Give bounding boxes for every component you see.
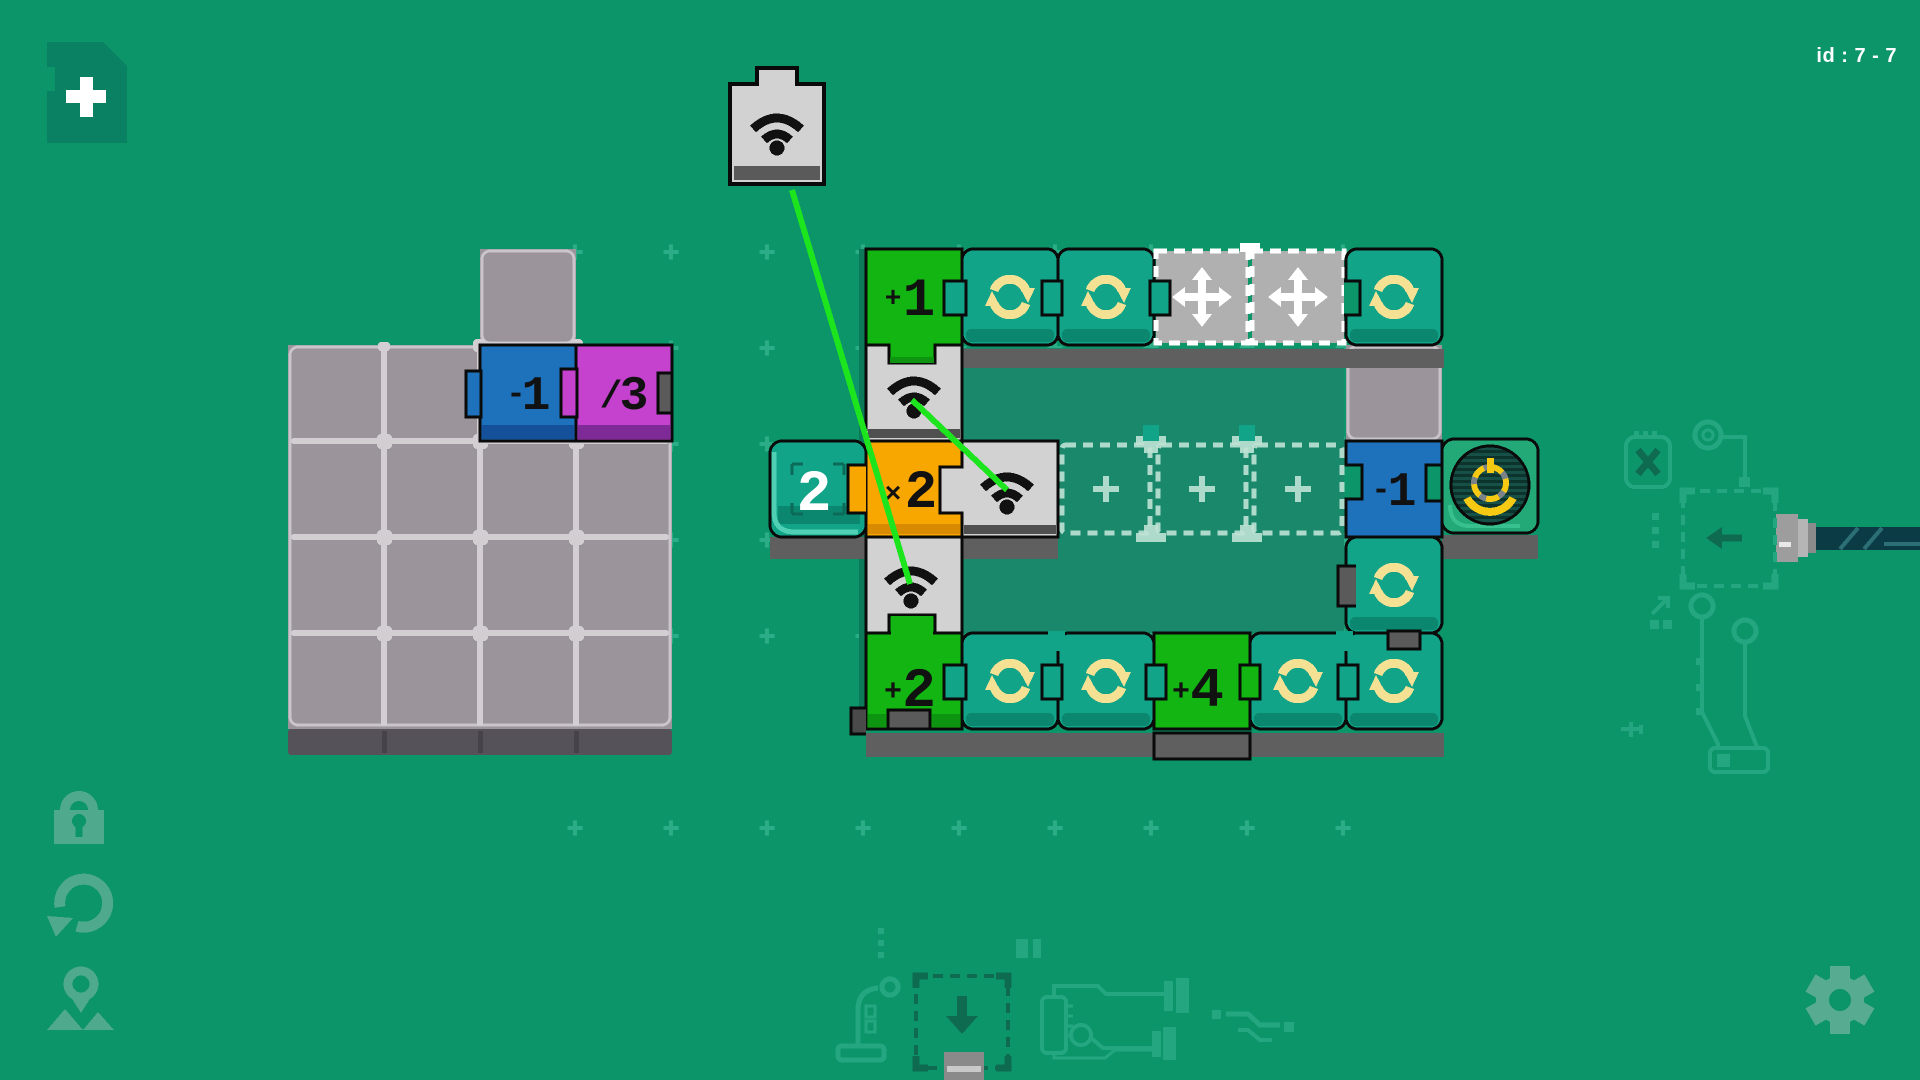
svg-text:2: 2 xyxy=(905,463,937,524)
svg-text:+: + xyxy=(884,676,902,710)
svg-text:2: 2 xyxy=(902,659,936,723)
svg-text:id : 7 - 7: id : 7 - 7 xyxy=(1816,45,1897,67)
svg-text:2: 2 xyxy=(797,463,832,528)
svg-text:3: 3 xyxy=(620,370,649,424)
svg-text:4: 4 xyxy=(1190,659,1224,723)
svg-text:+: + xyxy=(885,284,902,315)
svg-text:+: + xyxy=(1172,676,1190,710)
svg-text:1: 1 xyxy=(903,271,935,332)
svg-text:1: 1 xyxy=(1388,466,1417,520)
svg-text:1: 1 xyxy=(522,370,551,424)
